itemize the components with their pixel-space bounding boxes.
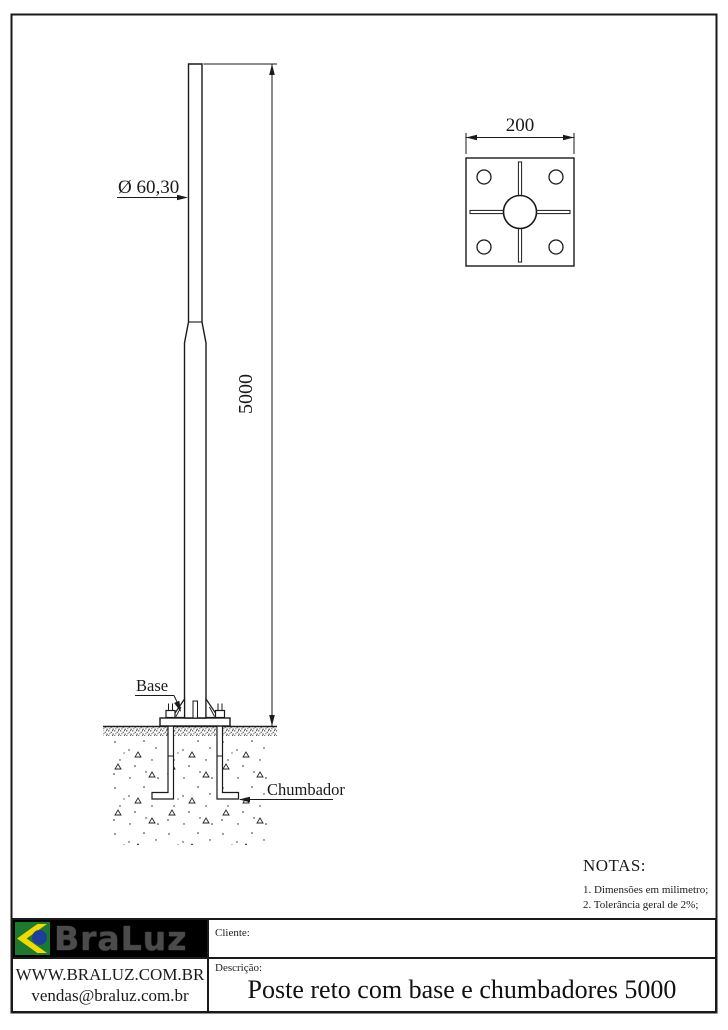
diameter-callout: Ø 60,30 [117,177,188,200]
logo-cell: BraLuz [13,920,209,959]
notes-block: NOTAS: 1. Dimensões em milimetro; 2. Tol… [583,856,723,914]
arrowhead-right [177,195,188,201]
drawing-sheet: { "drawing": { "elevation": { "diameter_… [0,0,728,1030]
base-callout: Base [135,676,181,712]
note-item: 1. Dimensões em milimetro; [583,883,723,898]
pole-elevation [160,64,230,726]
bolt-hole [477,170,491,184]
ground-hatch [103,726,277,736]
pole-section-circle [504,196,537,229]
diameter-dimension-label: Ø 60,30 [118,177,179,198]
braluz-logo-text: BraLuz [54,922,187,955]
anchor-nut-left [166,711,175,718]
contact-cell: WWW.BRALUZ.COM.BR vendas@braluz.com.br [13,959,209,1011]
client-cell: Cliente: [209,920,715,959]
plate-width-dimension-label: 200 [506,115,535,136]
base-callout-label: Base [136,676,168,695]
bolt-hole [549,240,563,254]
bolt-hole [549,170,563,184]
pole-body [185,64,207,718]
flag-globe [32,930,47,945]
anchor-callout-label: Chumbador [267,780,345,799]
pole-seam [193,701,198,718]
arrowhead-up [269,64,275,75]
client-label: Cliente: [215,927,250,939]
bolt-hole [477,240,491,254]
email-address: vendas@braluz.com.br [31,985,188,1006]
concrete-block [113,736,267,845]
arrowhead-left [466,135,477,141]
note-item: 2. Tolerância geral de 2%; [583,898,723,913]
foundation [103,726,277,845]
base-plate-top-view: 200 [466,115,574,266]
website-url: WWW.BRALUZ.COM.BR [16,964,205,985]
height-dimension: 5000 [204,64,278,726]
base-plate-side [160,718,230,726]
anchor-nut-right [216,711,225,718]
braluz-flag-icon [15,922,50,955]
arrowhead-down [269,715,275,726]
height-dimension-label: 5000 [235,374,257,414]
title-block: BraLuz Cliente: WWW.BRALUZ.COM.BR vendas… [11,918,717,1013]
notes-heading: NOTAS: [583,856,723,876]
drawing-title: Poste reto com base e chumbadores 5000 [215,972,709,1008]
arrowhead-right [563,135,574,141]
description-cell: Descrição: Poste reto com base e chumbad… [209,959,715,1011]
